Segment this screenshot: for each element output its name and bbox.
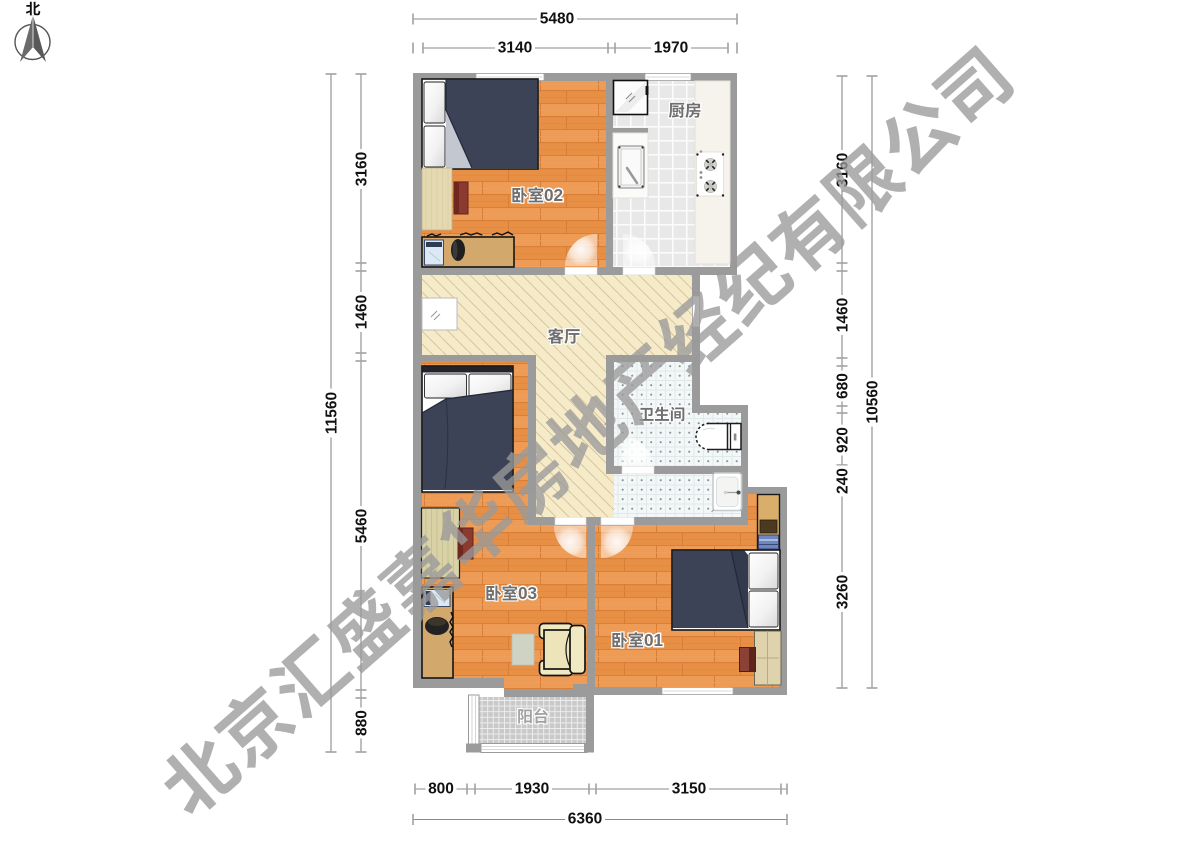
svg-text:1970: 1970 — [654, 40, 688, 57]
svg-text:3260: 3260 — [835, 575, 852, 609]
svg-text:920: 920 — [835, 427, 852, 453]
svg-text:3140: 3140 — [498, 40, 532, 57]
svg-text:1460: 1460 — [354, 295, 371, 329]
svg-text:02: 02 — [544, 185, 563, 205]
svg-text:6360: 6360 — [568, 811, 602, 828]
svg-text:10560: 10560 — [865, 380, 882, 423]
svg-text:11560: 11560 — [324, 392, 341, 434]
svg-text:240: 240 — [835, 468, 852, 494]
svg-text:880: 880 — [354, 710, 371, 736]
svg-text:800: 800 — [428, 781, 454, 798]
svg-text:5480: 5480 — [540, 11, 574, 28]
svg-text:1930: 1930 — [515, 781, 549, 798]
svg-text:3150: 3150 — [672, 781, 706, 798]
svg-text:5460: 5460 — [354, 509, 371, 543]
svg-text:01: 01 — [644, 630, 664, 650]
svg-text:680: 680 — [835, 373, 852, 399]
svg-text:1460: 1460 — [835, 298, 852, 332]
svg-text:03: 03 — [518, 583, 537, 603]
svg-text:3160: 3160 — [354, 152, 371, 186]
